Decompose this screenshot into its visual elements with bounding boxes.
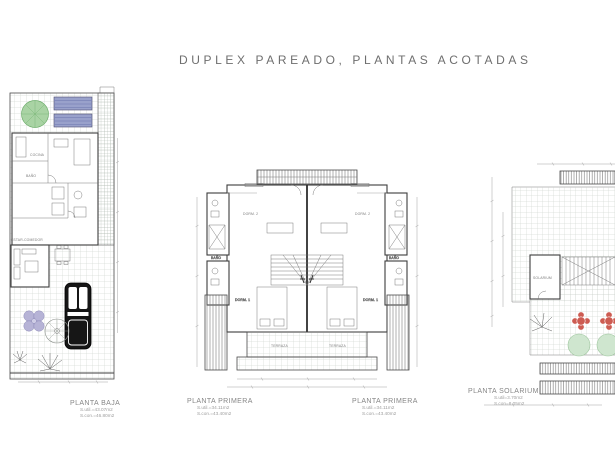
planta-baja-svg: COCINA BAÑO ESTAR-COMEDOR	[8, 83, 120, 385]
room-label-terraza-left: TERRAZA	[271, 344, 288, 348]
terrace: TERRAZA TERRAZA	[237, 332, 377, 370]
flower-icon	[24, 311, 44, 331]
room-label-dorm1-left: DORM. 1	[235, 298, 250, 302]
room-label-dorm2-left: DORM. 2	[243, 212, 258, 216]
drawing-title: DUPLEX PAREADO, PLANTAS ACOTADAS	[179, 53, 532, 67]
label-planta-solarium: PLANTA SOLARIUM S.util=3.70m2 S.con=8.05…	[468, 388, 539, 406]
drawing-canvas: DUPLEX PAREADO, PLANTAS ACOTADAS	[0, 0, 615, 454]
label-planta-primera-right: PLANTA PRIMERA S.util.=34.11m2 S.con.=43…	[352, 398, 418, 416]
plan-baja-drawing: COCINA BAÑO ESTAR-COMEDOR	[8, 83, 120, 385]
plant-icon	[45, 319, 69, 343]
planta-primera-svg: BAÑO BAÑO DORM. 2 DORM. 2	[191, 167, 423, 395]
solarium-room: SOLARIUM	[530, 255, 560, 299]
plan-name: PLANTA PRIMERA	[352, 398, 418, 405]
plan-primera-drawing: BAÑO BAÑO DORM. 2 DORM. 2	[191, 167, 423, 395]
plan-built-area: S.con.=43.40m2	[362, 411, 418, 417]
plan-built-area: S.con.=46.80m2	[80, 413, 120, 419]
plan-built-area: S.con=8.05m2	[494, 401, 539, 407]
room-label-bano-left: BAÑO	[211, 255, 221, 260]
plan-name: PLANTA PRIMERA	[187, 398, 253, 405]
plan-solarium-drawing: SOLARIUM	[482, 157, 615, 407]
pergola-strips	[540, 363, 615, 394]
room-label-dorm2-right: DORM. 2	[355, 212, 370, 216]
top-parapet	[537, 163, 615, 185]
living-room: ESTAR-COMEDOR	[11, 238, 49, 287]
room-label-bano-right: BAÑO	[389, 255, 399, 260]
top-balcony	[257, 170, 357, 184]
room-label-solarium: SOLARIUM	[533, 276, 552, 280]
duplex-walls	[207, 184, 407, 333]
room-label-estar: ESTAR-COMEDOR	[11, 238, 43, 242]
label-planta-primera-left: PLANTA PRIMERA S.util.=34.11m2 S.con.=43…	[187, 398, 253, 416]
room-label-bano: BAÑO	[26, 173, 36, 178]
plan-name: PLANTA BAJA	[70, 400, 120, 407]
room-label-terraza-right: TERRAZA	[329, 344, 346, 348]
label-planta-baja: PLANTA BAJA S.util.=43.07m2 S.con.=46.80…	[70, 400, 120, 418]
room-label-dorm1-right: DORM. 1	[363, 298, 378, 302]
planta-solarium-svg: SOLARIUM	[482, 157, 615, 407]
house-walls: COCINA BAÑO	[12, 133, 98, 245]
room-label-cocina: COCINA	[30, 153, 45, 157]
tree-icon	[22, 101, 49, 128]
plan-built-area: S.con.=43.40m2	[197, 411, 253, 417]
stairs	[562, 257, 615, 285]
plan-name: PLANTA SOLARIUM	[468, 388, 539, 395]
car-icon	[65, 283, 91, 349]
